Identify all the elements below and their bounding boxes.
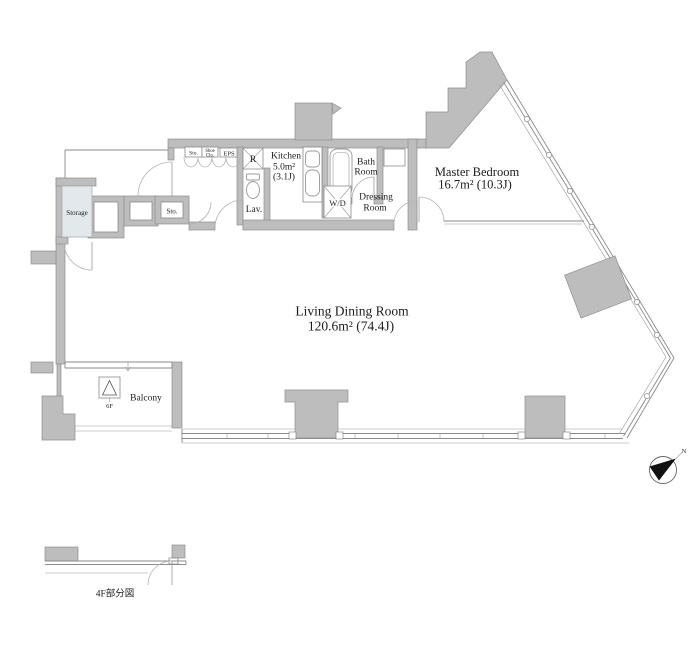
storage-door-arc <box>64 242 92 270</box>
dressing-room-label-1: Dressing <box>359 193 393 203</box>
corridor-wall-left <box>189 222 215 230</box>
north-label: N <box>682 448 687 455</box>
toilet-tank <box>247 174 260 180</box>
kitchen-label: Kitchen <box>271 152 301 162</box>
washer-dryer-label: W/D <box>329 198 346 208</box>
eps-label: EPS <box>223 151 235 158</box>
partial-plan-4f: 4F部分図 <box>45 545 186 600</box>
partial-plan-label: 4F部分図 <box>96 588 135 600</box>
balcony-right-wall <box>172 362 182 428</box>
corridor-wall-right <box>243 220 394 230</box>
hall-storage-door-arc <box>189 202 211 224</box>
left-wall-thin <box>57 364 61 397</box>
fixtures <box>99 147 352 402</box>
storage-label: Storage <box>66 209 87 217</box>
diagonal-window-upper <box>504 80 674 358</box>
kitchen-tatami: (3.1J) <box>273 172 295 183</box>
left-fin-lower <box>31 362 53 373</box>
partial-wall-right <box>172 545 185 558</box>
balcony-window-marker <box>125 362 131 371</box>
floor-plan: Living Dining Room 120.6m² (74.4J) Maste… <box>0 0 700 650</box>
master-bedroom-area: 16.7m² (10.3J) <box>438 178 512 192</box>
toilet-bowl <box>247 182 260 199</box>
bedroom-door-arc <box>419 197 444 222</box>
compass: N <box>650 448 687 484</box>
balcony-label: Balcony <box>130 394 162 404</box>
lav-right-wall <box>264 168 270 225</box>
diagonal-pillar <box>565 256 632 318</box>
dressing-room-label-2: Room <box>363 204 387 214</box>
bedroom-west-wall <box>408 139 417 230</box>
stepped-wall-mass <box>426 52 507 148</box>
living-room-label: Living Dining Room <box>295 304 409 319</box>
lavatory-label: Lav. <box>246 205 263 215</box>
partial-wall-left <box>45 547 78 561</box>
balcony-left-mass <box>42 396 75 440</box>
partial-corridor-lines <box>45 561 186 565</box>
storage-top-wall <box>56 178 96 186</box>
bath-room-label-1: Bath <box>357 158 375 168</box>
living-room-area: 120.6m² (74.4J) <box>308 319 394 334</box>
exterior-edges <box>65 150 168 178</box>
entry-jamb <box>168 148 174 160</box>
top-storage-label: Sto. <box>189 151 198 157</box>
storage-stub <box>56 237 68 244</box>
entry-door-arc <box>138 162 172 196</box>
floor-plan-page: Living Dining Room 120.6m² (74.4J) Maste… <box>0 0 700 650</box>
bath-room-label-2: Room <box>354 168 378 178</box>
kitchen-area: 5.0m² <box>273 163 295 173</box>
kitchen-sink-small <box>306 151 320 167</box>
balcony-railing <box>75 426 172 431</box>
south-pillar-rect <box>525 396 565 438</box>
kitchen-sink-large <box>306 170 320 196</box>
left-fin-upper <box>31 251 56 264</box>
diagonal-inner-line-lower <box>619 357 666 434</box>
room-labels: Living Dining Room 120.6m² (74.4J) Maste… <box>66 149 519 410</box>
balcony-window <box>65 362 172 368</box>
dressing-closet-box <box>384 149 405 166</box>
top-protrusion-notch <box>332 103 341 114</box>
pillars <box>285 256 631 439</box>
hatch-floor-label: 6F <box>106 403 113 410</box>
windows <box>65 80 674 443</box>
hall-storage-label: Sto. <box>166 208 177 216</box>
refrigerator-label: R <box>250 155 257 165</box>
south-pillar-t <box>285 390 348 438</box>
shoe-closet-label-2: Clo. <box>206 154 214 159</box>
top-protrusion <box>295 103 332 140</box>
